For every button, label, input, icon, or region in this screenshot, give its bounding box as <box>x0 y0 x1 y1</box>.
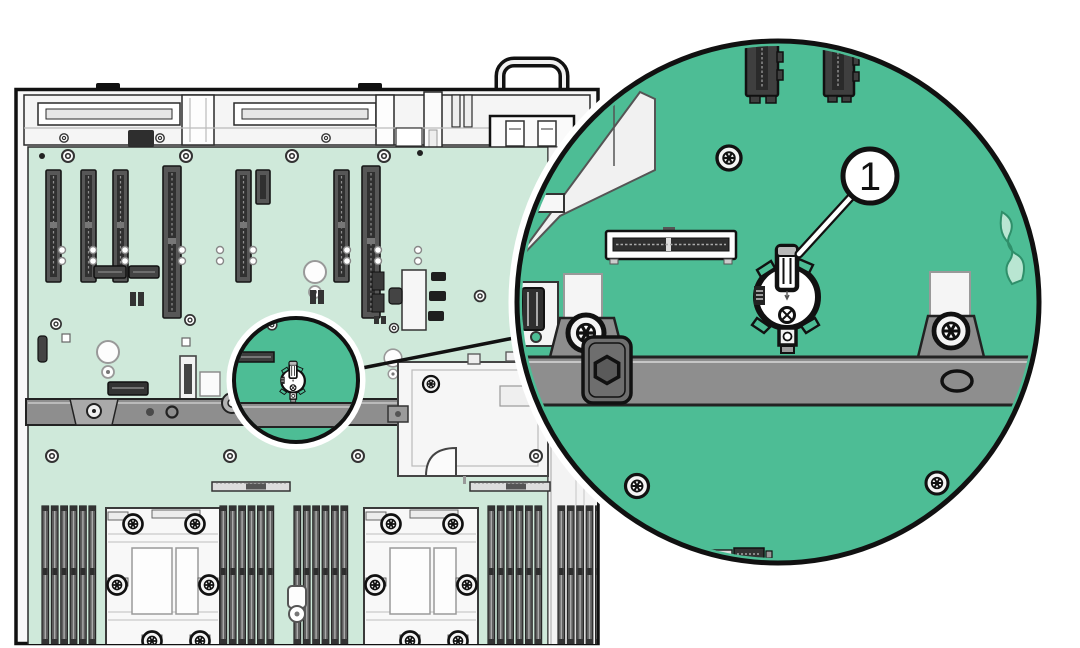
battery-location-highlight <box>230 314 363 447</box>
board-screw <box>46 450 58 462</box>
magnified-battery-view: 1 <box>500 36 1060 568</box>
callout-1-number: 1 <box>859 155 881 199</box>
cpu-heatsink-1 <box>106 508 220 648</box>
board-screw <box>530 450 542 462</box>
magnified-connector-1 <box>746 40 783 103</box>
callout-1: 1 <box>843 149 897 203</box>
figure-battery-location: 1 <box>0 0 1080 648</box>
board-screw <box>352 450 364 462</box>
board-screw <box>926 472 948 494</box>
bar-latch <box>583 337 631 403</box>
board-screw <box>224 450 236 462</box>
magnified-riser-slot <box>606 227 736 264</box>
board-screw <box>626 475 649 498</box>
cpu-heatsink-2 <box>364 508 478 648</box>
latch-block <box>128 130 154 147</box>
keystone-pin <box>288 586 306 622</box>
diagram-canvas: 1 <box>0 0 1080 648</box>
board-standoff-screw <box>717 146 741 170</box>
bar-oval-hole <box>942 371 972 391</box>
bar-torx-screw-right <box>934 314 968 348</box>
